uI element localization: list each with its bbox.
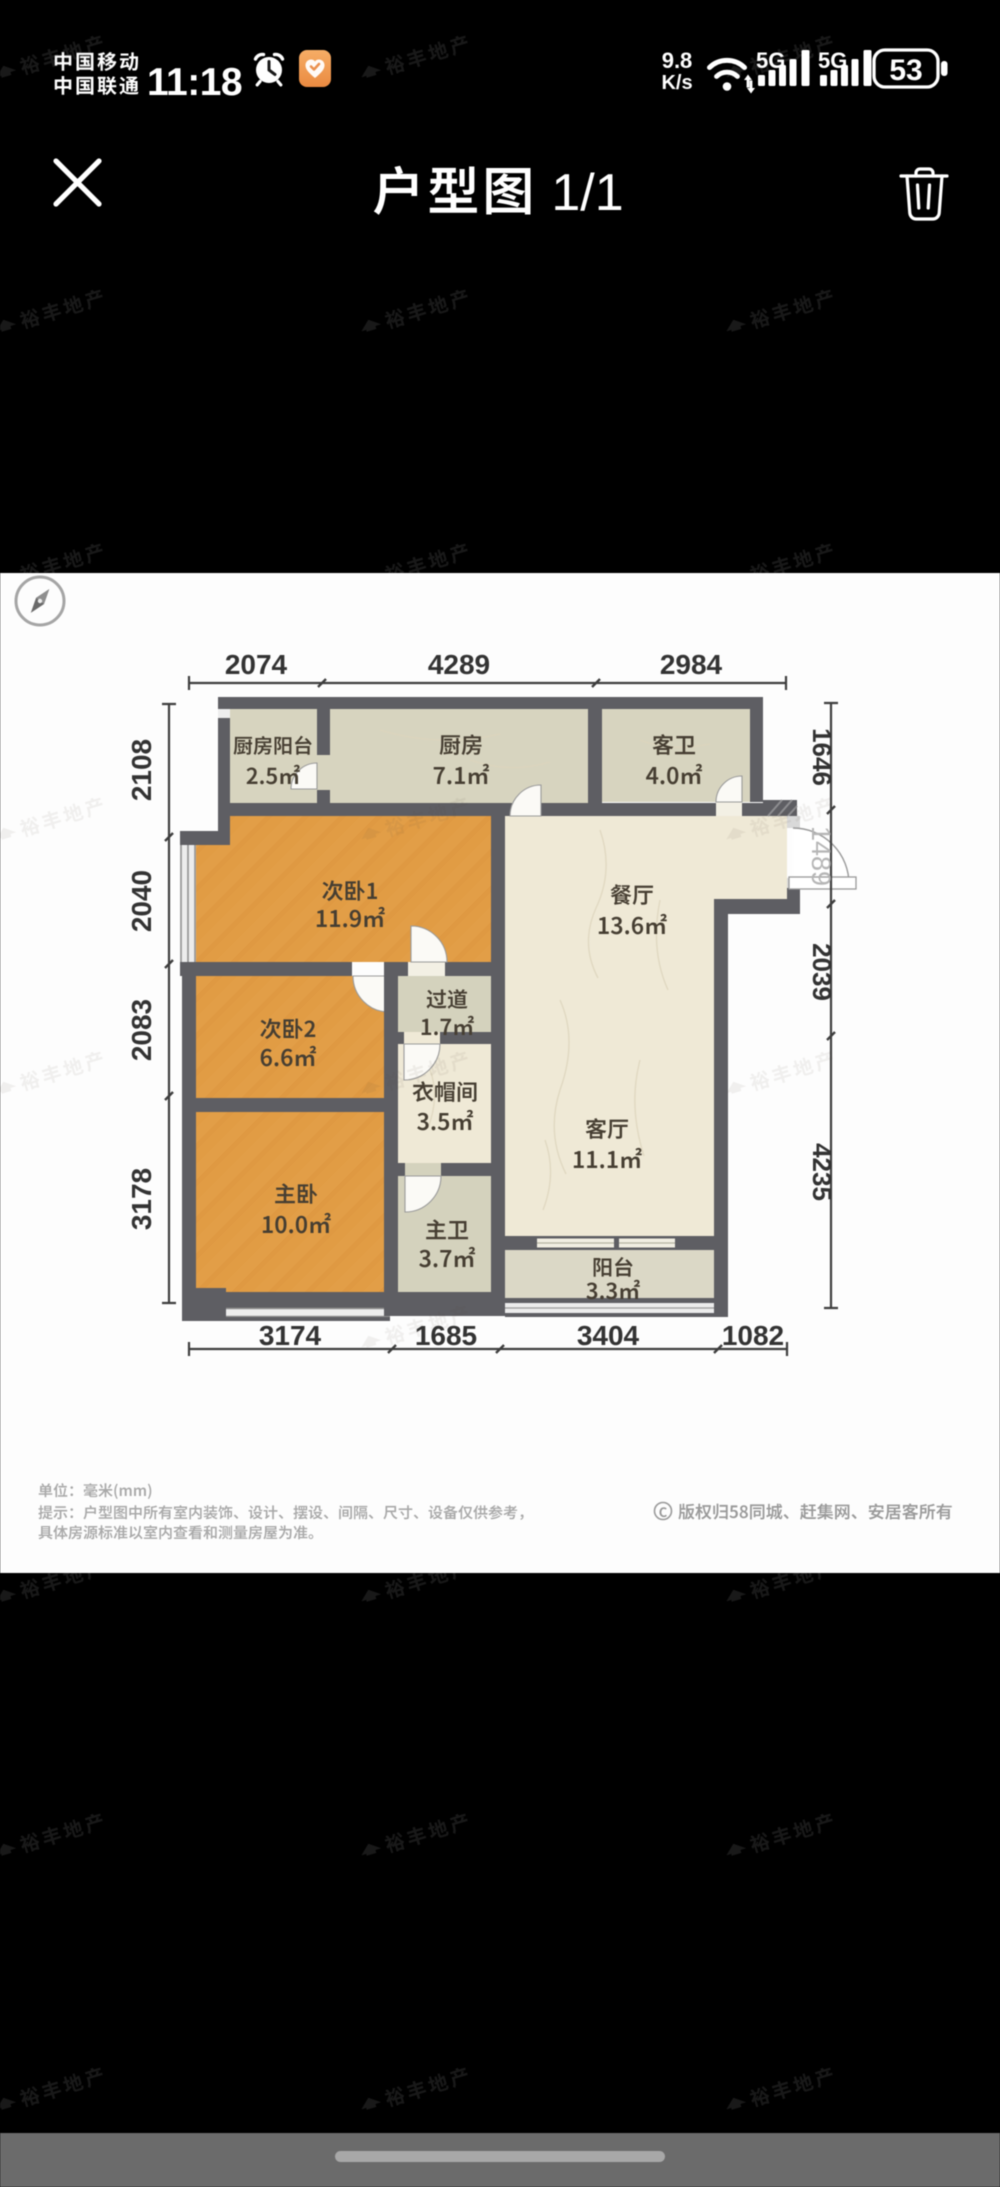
svg-text:1646: 1646 [807,728,837,786]
svg-text:3174: 3174 [259,1320,322,1351]
svg-text:1082: 1082 [722,1320,784,1351]
svg-text:1/1: 1/1 [551,164,623,222]
svg-text:53: 53 [889,54,922,87]
svg-text:3178: 3178 [126,1168,157,1230]
svg-text:2083: 2083 [126,999,157,1061]
svg-text:1685: 1685 [415,1320,477,1351]
svg-text:9.8: 9.8 [662,48,693,73]
svg-text:2040: 2040 [126,870,157,932]
svg-text:11:18: 11:18 [147,61,242,104]
svg-text:2074: 2074 [225,649,288,680]
svg-text:2984: 2984 [660,649,723,680]
svg-text:1489: 1489 [806,826,836,886]
svg-text:2039: 2039 [807,943,837,1001]
svg-text:4289: 4289 [428,649,490,680]
svg-text:4235: 4235 [807,1143,837,1201]
svg-text:K/s: K/s [661,72,692,94]
svg-text:3404: 3404 [577,1320,640,1351]
svg-text:2108: 2108 [126,739,157,801]
